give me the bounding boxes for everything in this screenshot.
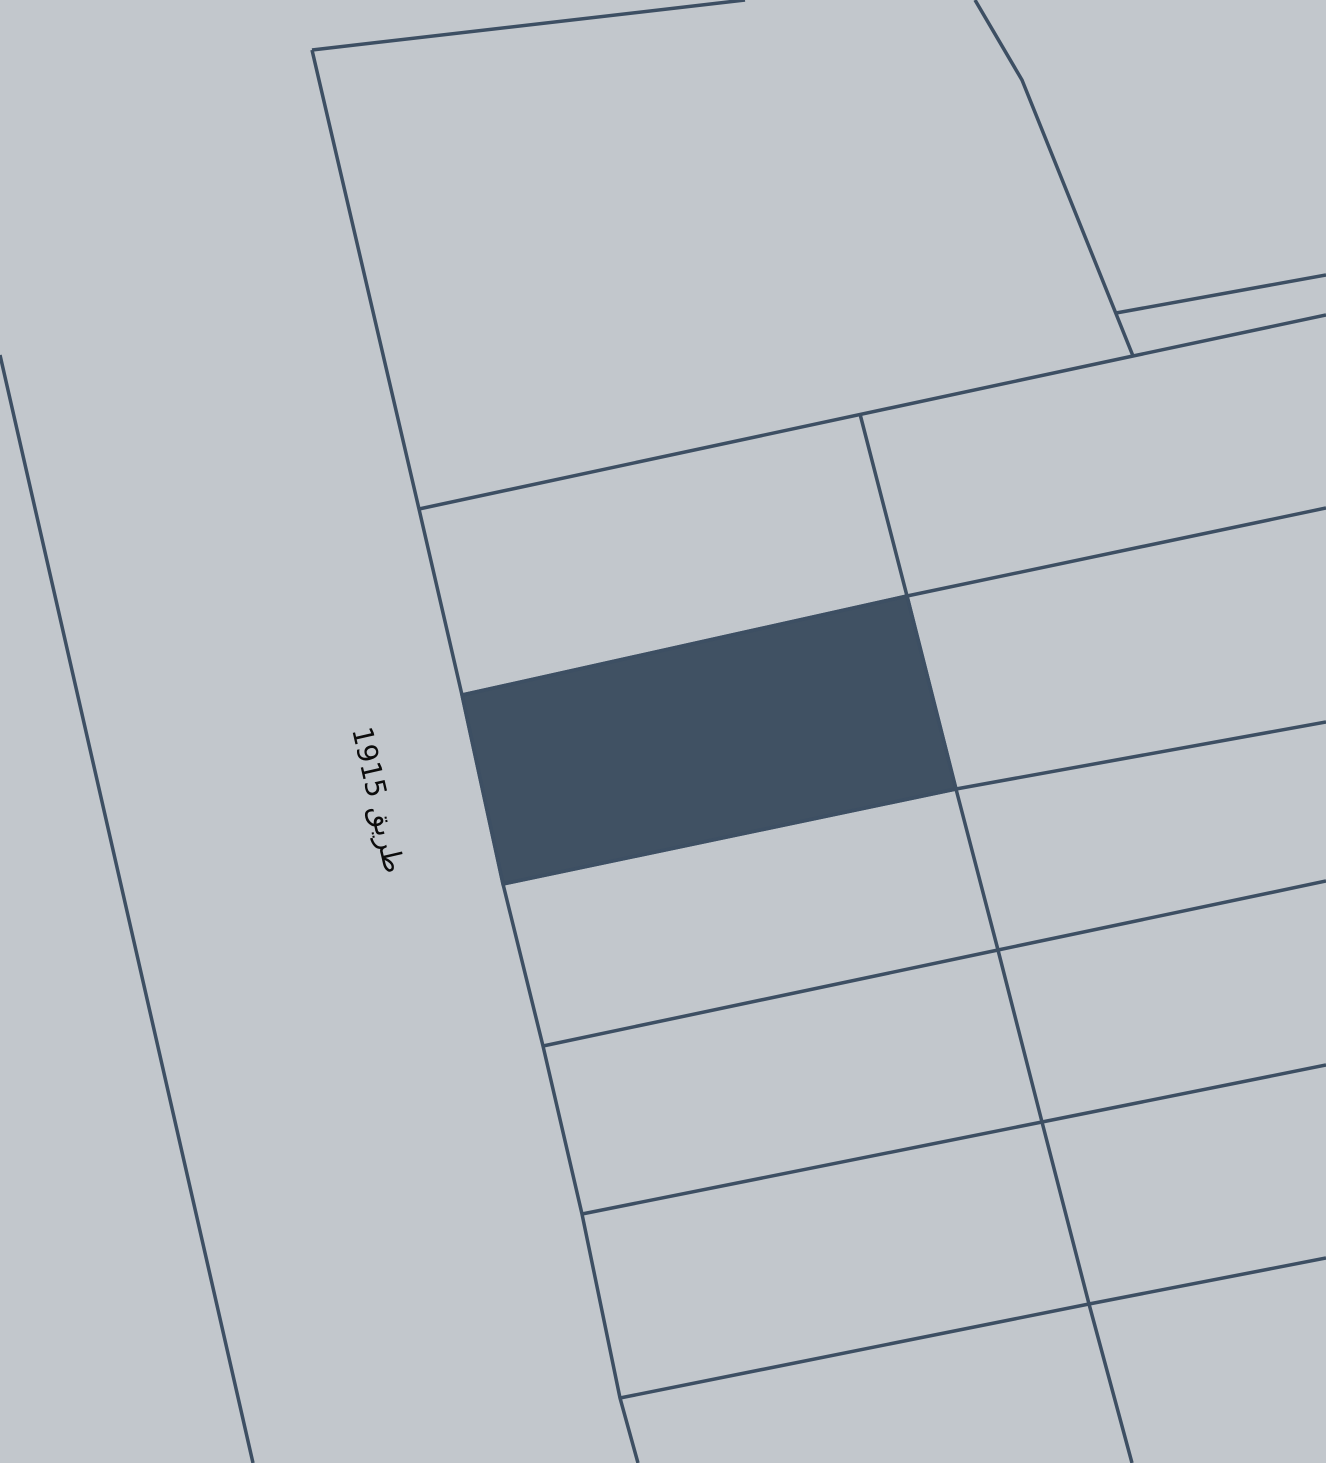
boundary-upper-right-row-line [1116,275,1326,313]
map-viewport[interactable]: طريق 1915 [0,0,1326,1463]
boundary-road-left-edge [0,355,253,1463]
boundary-column-line [860,414,1132,1463]
boundary-row-line-5 [620,1258,1326,1398]
boundary-main-cross-line [419,315,1326,509]
boundary-top-parcel-top-edge [312,0,745,50]
boundary-top-parcel-right-edge [975,0,1133,356]
parcel-map-canvas[interactable] [0,0,1326,1463]
boundary-row-line-4 [582,1065,1326,1214]
boundary-row-line-3 [543,881,1326,1046]
